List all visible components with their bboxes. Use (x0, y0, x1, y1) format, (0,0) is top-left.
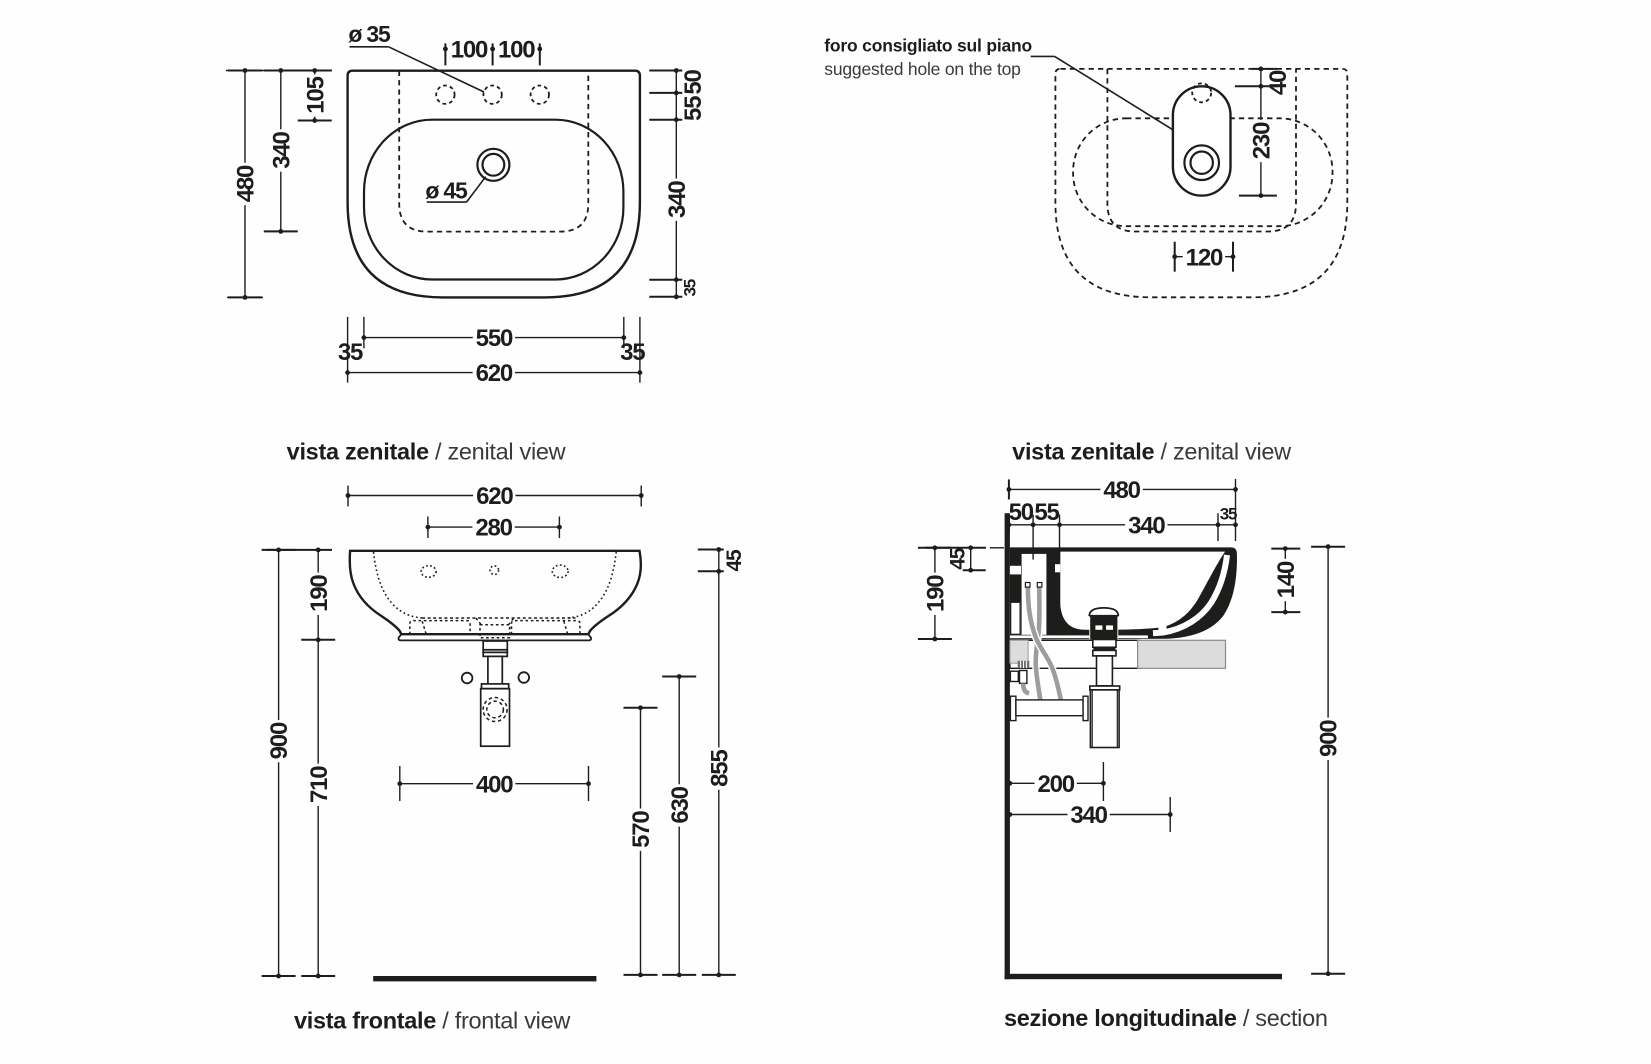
svg-text:550: 550 (476, 325, 513, 352)
svg-text:280: 280 (475, 515, 512, 542)
svg-text:140: 140 (1273, 561, 1300, 598)
svg-text:55: 55 (1034, 499, 1059, 526)
svg-text:710: 710 (306, 766, 333, 803)
svg-text:35: 35 (620, 339, 645, 366)
svg-text:630: 630 (667, 786, 694, 823)
svg-text:570: 570 (628, 811, 655, 848)
svg-text:45: 45 (723, 549, 746, 571)
svg-text:190: 190 (306, 575, 333, 612)
svg-text:340: 340 (1128, 512, 1165, 539)
svg-text:900: 900 (266, 722, 293, 759)
svg-text:190: 190 (923, 575, 950, 612)
svg-text:900: 900 (1316, 720, 1343, 757)
svg-text:50: 50 (1009, 499, 1034, 526)
svg-text:vista zenitale / zenital view: vista zenitale / zenital view (287, 439, 567, 465)
svg-text:suggested hole on the top: suggested hole on the top (824, 59, 1020, 79)
svg-text:400: 400 (476, 771, 513, 798)
svg-text:100: 100 (451, 37, 488, 64)
svg-text:340: 340 (664, 181, 691, 218)
svg-text:35: 35 (681, 279, 700, 296)
svg-text:sezione longitudinale / sectio: sezione longitudinale / section (1004, 1005, 1328, 1031)
svg-text:620: 620 (476, 360, 513, 387)
svg-text:340: 340 (268, 131, 295, 168)
svg-text:45: 45 (946, 547, 969, 569)
svg-text:50: 50 (680, 70, 707, 95)
svg-text:55: 55 (680, 96, 707, 121)
svg-text:ø 35: ø 35 (348, 21, 391, 47)
svg-text:foro consigliato sul piano: foro consigliato sul piano (824, 36, 1032, 56)
svg-text:vista zenitale / zenital view: vista zenitale / zenital view (1012, 439, 1292, 465)
svg-text:200: 200 (1037, 771, 1074, 798)
svg-text:120: 120 (1186, 244, 1223, 271)
svg-text:855: 855 (706, 750, 733, 787)
svg-text:35: 35 (338, 339, 363, 366)
svg-text:480: 480 (233, 165, 260, 202)
svg-text:105: 105 (302, 76, 329, 113)
svg-text:40: 40 (1265, 70, 1292, 95)
svg-text:620: 620 (476, 483, 513, 510)
svg-text:340: 340 (1070, 802, 1107, 829)
svg-text:480: 480 (1103, 477, 1140, 504)
svg-text:ø 45: ø 45 (425, 177, 468, 203)
svg-text:35: 35 (1220, 504, 1237, 523)
svg-text:vista frontale / frontal view: vista frontale / frontal view (294, 1008, 571, 1034)
svg-text:100: 100 (498, 37, 535, 64)
svg-text:230: 230 (1249, 122, 1276, 159)
